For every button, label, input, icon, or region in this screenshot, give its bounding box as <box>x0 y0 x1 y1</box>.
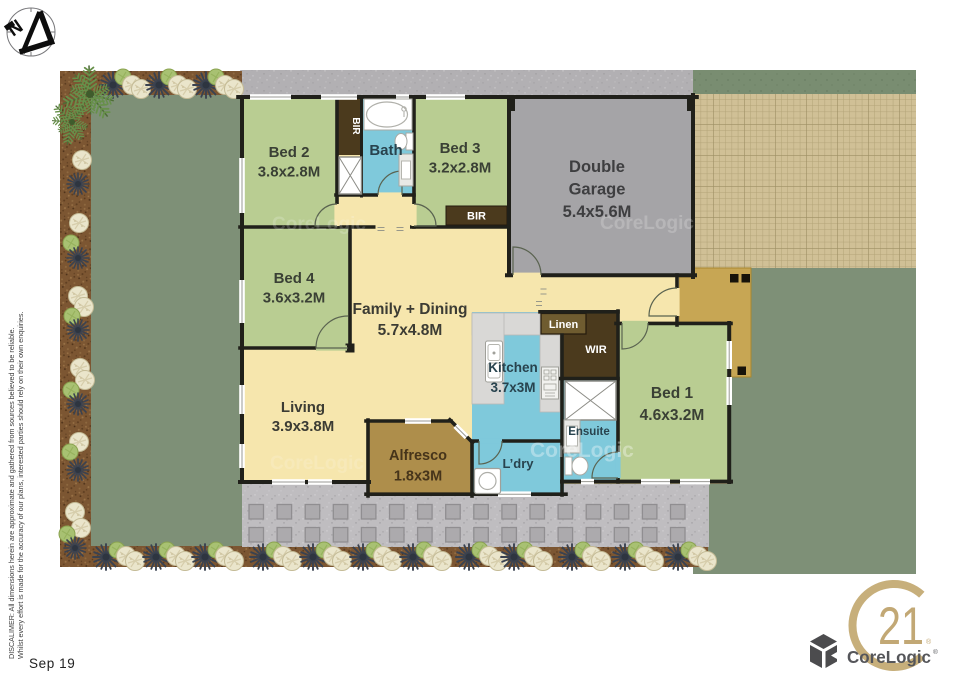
svg-text:3.7x3M: 3.7x3M <box>490 380 535 395</box>
svg-text:DISCALIMER: All dimensions he: DISCALIMER: All dimensions herein are ap… <box>7 327 16 659</box>
svg-text:Whilst every effort is made fo: Whilst every effort is made for the accu… <box>16 312 25 659</box>
svg-text:BIR: BIR <box>350 117 361 135</box>
svg-text:WIR: WIR <box>585 344 606 356</box>
svg-text:3.9x3.8M: 3.9x3.8M <box>272 418 335 435</box>
svg-text:CoreLogic: CoreLogic <box>847 647 931 667</box>
svg-text:®: ® <box>933 648 938 656</box>
svg-text:Double: Double <box>569 158 625 176</box>
svg-text:Garage: Garage <box>569 181 626 199</box>
svg-text:Linen: Linen <box>549 319 579 331</box>
svg-text:Sep 19: Sep 19 <box>29 656 75 671</box>
svg-text:4.6x3.2M: 4.6x3.2M <box>640 407 705 424</box>
svg-text:BIR: BIR <box>467 211 486 223</box>
svg-text:Living: Living <box>281 399 325 416</box>
svg-text:1.8x3M: 1.8x3M <box>394 469 442 485</box>
svg-text:Bed 4: Bed 4 <box>274 270 316 287</box>
svg-text:Bed 3: Bed 3 <box>440 140 481 157</box>
svg-text:3.8x2.8M: 3.8x2.8M <box>258 164 321 181</box>
svg-text:Bath: Bath <box>369 142 402 159</box>
svg-text:CoreLogic: CoreLogic <box>530 439 634 462</box>
svg-text:CoreLogic: CoreLogic <box>272 214 366 235</box>
svg-text:3.2x2.8M: 3.2x2.8M <box>429 160 492 177</box>
svg-text:Bed 1: Bed 1 <box>651 385 694 402</box>
svg-text:CoreLogic: CoreLogic <box>270 453 364 474</box>
svg-text:3.6x3.2M: 3.6x3.2M <box>263 290 326 307</box>
svg-text:Family + Dining: Family + Dining <box>353 301 468 318</box>
svg-text:CoreLogic: CoreLogic <box>600 213 694 234</box>
svg-text:5.7x4.8M: 5.7x4.8M <box>378 322 443 339</box>
svg-text:Alfresco: Alfresco <box>389 448 447 464</box>
svg-text:Bed 2: Bed 2 <box>269 144 310 161</box>
svg-text:Kitchen: Kitchen <box>488 360 538 375</box>
svg-text:®: ® <box>926 638 932 646</box>
svg-text:Ensuite: Ensuite <box>568 426 610 438</box>
